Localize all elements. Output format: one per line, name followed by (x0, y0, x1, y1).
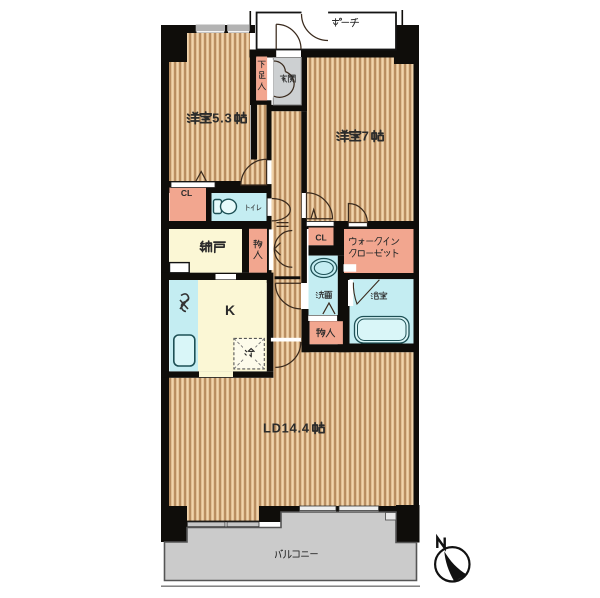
svg-text:5.3: 5.3 (212, 111, 232, 126)
svg-text:K: K (225, 302, 235, 318)
svg-text:CL: CL (181, 188, 192, 198)
svg-text:CL: CL (315, 233, 326, 243)
svg-text:7: 7 (362, 129, 370, 144)
svg-text:LD14.4: LD14.4 (263, 421, 310, 436)
